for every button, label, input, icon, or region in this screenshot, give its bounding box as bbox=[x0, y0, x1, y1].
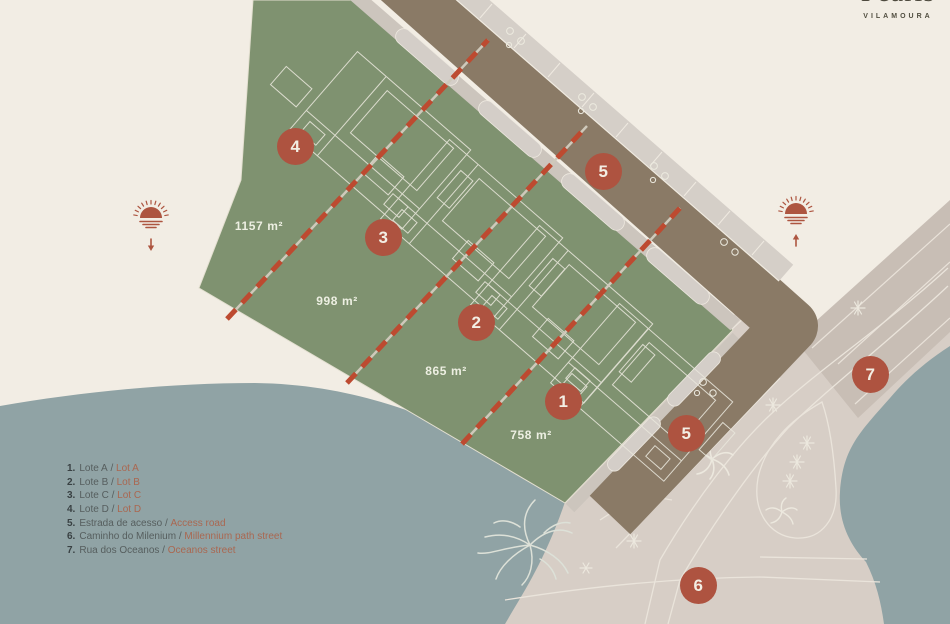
legend-label-en: Lot A bbox=[116, 463, 139, 474]
marker-2-lot-b: 2 bbox=[458, 304, 495, 341]
legend-item-lot-b: 2.Lote B / Lot B bbox=[67, 476, 282, 490]
legend-item-oceanos-street: 7.Rua dos Oceanos / Oceanos street bbox=[67, 544, 282, 558]
legend-label-pt: Lote C bbox=[79, 490, 108, 501]
legend-number: 3. bbox=[67, 490, 75, 501]
brand-name: Pearls bbox=[861, 0, 935, 8]
legend-label-pt: Lote D bbox=[79, 504, 108, 515]
legend-label-pt: Caminho do Milenium bbox=[79, 531, 176, 542]
legend-number: 4. bbox=[67, 504, 75, 515]
legend-number: 2. bbox=[67, 477, 75, 488]
legend-separator: / bbox=[159, 545, 167, 556]
legend-number: 5. bbox=[67, 518, 75, 529]
area-label-lot-c: 998 m² bbox=[316, 294, 358, 308]
legend-separator: / bbox=[109, 490, 117, 501]
legend-number: 1. bbox=[67, 463, 75, 474]
legend-number: 6. bbox=[67, 531, 75, 542]
legend-separator: / bbox=[109, 504, 117, 515]
legend-item-lot-a: 1.Lote A / Lot A bbox=[67, 462, 282, 476]
marker-5-access-road-south: 5 bbox=[668, 415, 705, 452]
site-plan-page: 4 3 2 1 5 5 6 7 1157 m² 998 m² 865 m² 75… bbox=[0, 0, 950, 624]
marker-5-access-road-north: 5 bbox=[585, 153, 622, 190]
area-label-lot-b: 865 m² bbox=[425, 364, 467, 378]
area-label-lot-a: 758 m² bbox=[510, 428, 552, 442]
legend-label-en: Oceanos street bbox=[168, 545, 236, 556]
marker-3-lot-c: 3 bbox=[365, 219, 402, 256]
marker-6-milenium-path: 6 bbox=[680, 567, 717, 604]
legend-item-lot-d: 4.Lote D / Lot D bbox=[67, 503, 282, 517]
legend-item-milenium-path: 6.Caminho do Milenium / Millennium path … bbox=[67, 530, 282, 544]
legend-label-en: Lot B bbox=[117, 477, 140, 488]
area-label-lot-d: 1157 m² bbox=[235, 219, 283, 233]
legend-label-en: Access road bbox=[171, 518, 226, 529]
marker-1-lot-a: 1 bbox=[545, 383, 582, 420]
legend-label-pt: Lote B bbox=[79, 477, 108, 488]
legend-number: 7. bbox=[67, 545, 75, 556]
brand-logo: Pearls bbox=[826, 0, 950, 7]
marker-4-lot-d: 4 bbox=[277, 128, 314, 165]
brand-subtitle: VILAMOURA bbox=[826, 13, 950, 20]
legend-label-pt: Estrada de acesso bbox=[79, 518, 162, 529]
legend-label-pt: Lote A bbox=[79, 463, 107, 474]
legend-label-en: Lot C bbox=[117, 490, 141, 501]
legend-separator: / bbox=[108, 477, 116, 488]
legend-label-en: Lot D bbox=[117, 504, 141, 515]
legend-separator: / bbox=[162, 518, 170, 529]
legend-label-en: Millennium path street bbox=[184, 531, 282, 542]
legend-item-access-road: 5.Estrada de acesso / Access road bbox=[67, 517, 282, 531]
legend-label-pt: Rua dos Oceanos bbox=[79, 545, 159, 556]
legend-separator: / bbox=[108, 463, 116, 474]
legend: 1.Lote A / Lot A 2.Lote B / Lot B 3.Lote… bbox=[67, 462, 282, 558]
legend-item-lot-c: 3.Lote C / Lot C bbox=[67, 489, 282, 503]
marker-7-oceanos-street: 7 bbox=[852, 356, 889, 393]
